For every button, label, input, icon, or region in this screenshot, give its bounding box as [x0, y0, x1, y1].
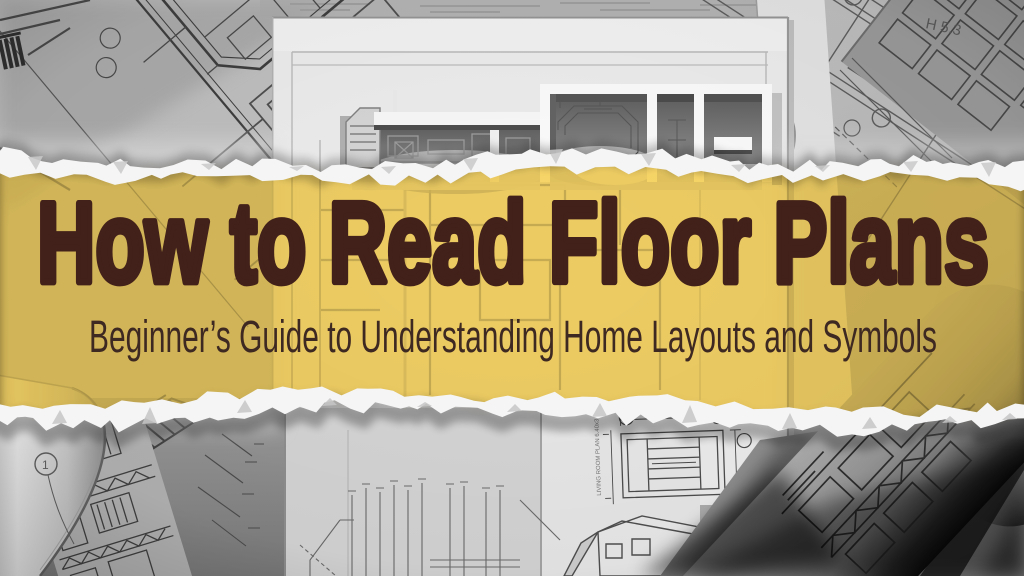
svg-text:Beginner’s Guide to Understand: Beginner’s Guide to Understanding Home L… [89, 312, 937, 363]
svg-text:How to Read Floor Plans: How to Read Floor Plans [37, 179, 989, 307]
